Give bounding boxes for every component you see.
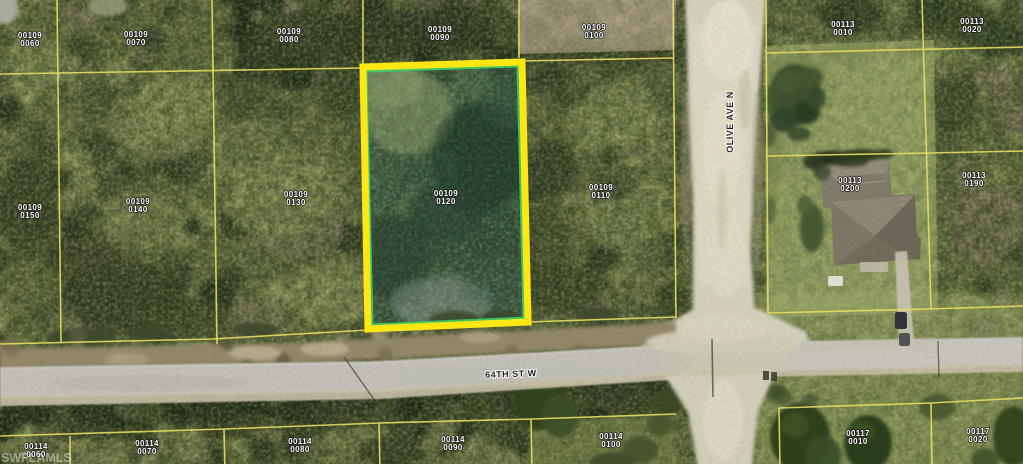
- svg-text:0060: 0060: [20, 39, 40, 48]
- svg-text:0080: 0080: [279, 35, 299, 44]
- svg-text:0100: 0100: [584, 31, 604, 40]
- svg-text:0020: 0020: [968, 435, 988, 444]
- svg-text:0100: 0100: [601, 440, 621, 449]
- svg-text:SWFLAMLS: SWFLAMLS: [1, 451, 72, 464]
- svg-text:0090: 0090: [430, 33, 450, 42]
- svg-text:64TH ST W: 64TH ST W: [485, 368, 537, 380]
- svg-text:0130: 0130: [286, 198, 306, 207]
- svg-text:0090: 0090: [443, 443, 463, 452]
- svg-text:0120: 0120: [436, 197, 456, 206]
- svg-text:OLIVE AVE N: OLIVE AVE N: [725, 91, 735, 153]
- svg-text:0080: 0080: [290, 445, 310, 454]
- svg-text:0070: 0070: [137, 447, 157, 456]
- svg-text:0200: 0200: [840, 184, 860, 193]
- svg-text:0190: 0190: [964, 179, 984, 188]
- svg-text:0110: 0110: [592, 191, 611, 200]
- svg-text:0010: 0010: [848, 437, 868, 446]
- svg-text:0020: 0020: [962, 25, 982, 34]
- svg-text:0010: 0010: [833, 28, 853, 37]
- svg-text:0150: 0150: [20, 211, 40, 220]
- svg-text:0140: 0140: [128, 205, 148, 214]
- svg-text:0070: 0070: [126, 38, 146, 47]
